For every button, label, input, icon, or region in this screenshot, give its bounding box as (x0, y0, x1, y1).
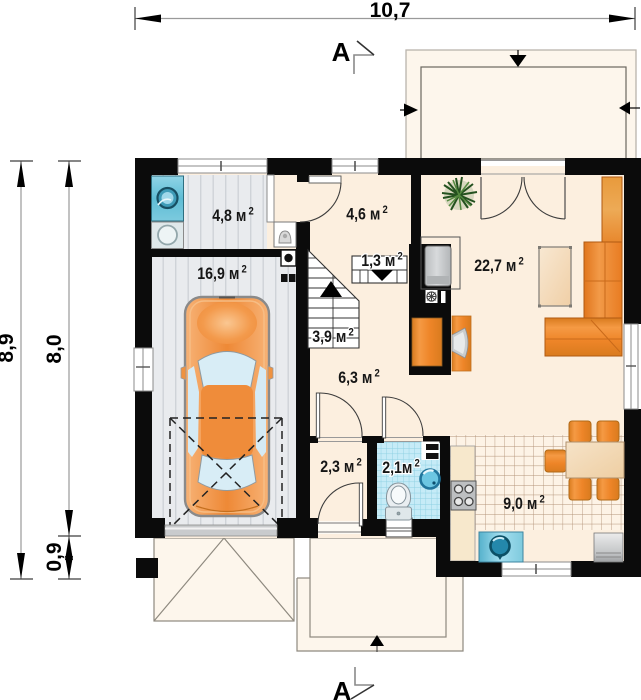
svg-text:10,7: 10,7 (370, 0, 411, 22)
svg-text:8,9: 8,9 (0, 333, 18, 362)
svg-text:8,0: 8,0 (43, 334, 66, 363)
svg-text:A: A (332, 37, 351, 67)
svg-text:A: A (333, 676, 352, 700)
svg-text:0,9: 0,9 (43, 542, 66, 571)
